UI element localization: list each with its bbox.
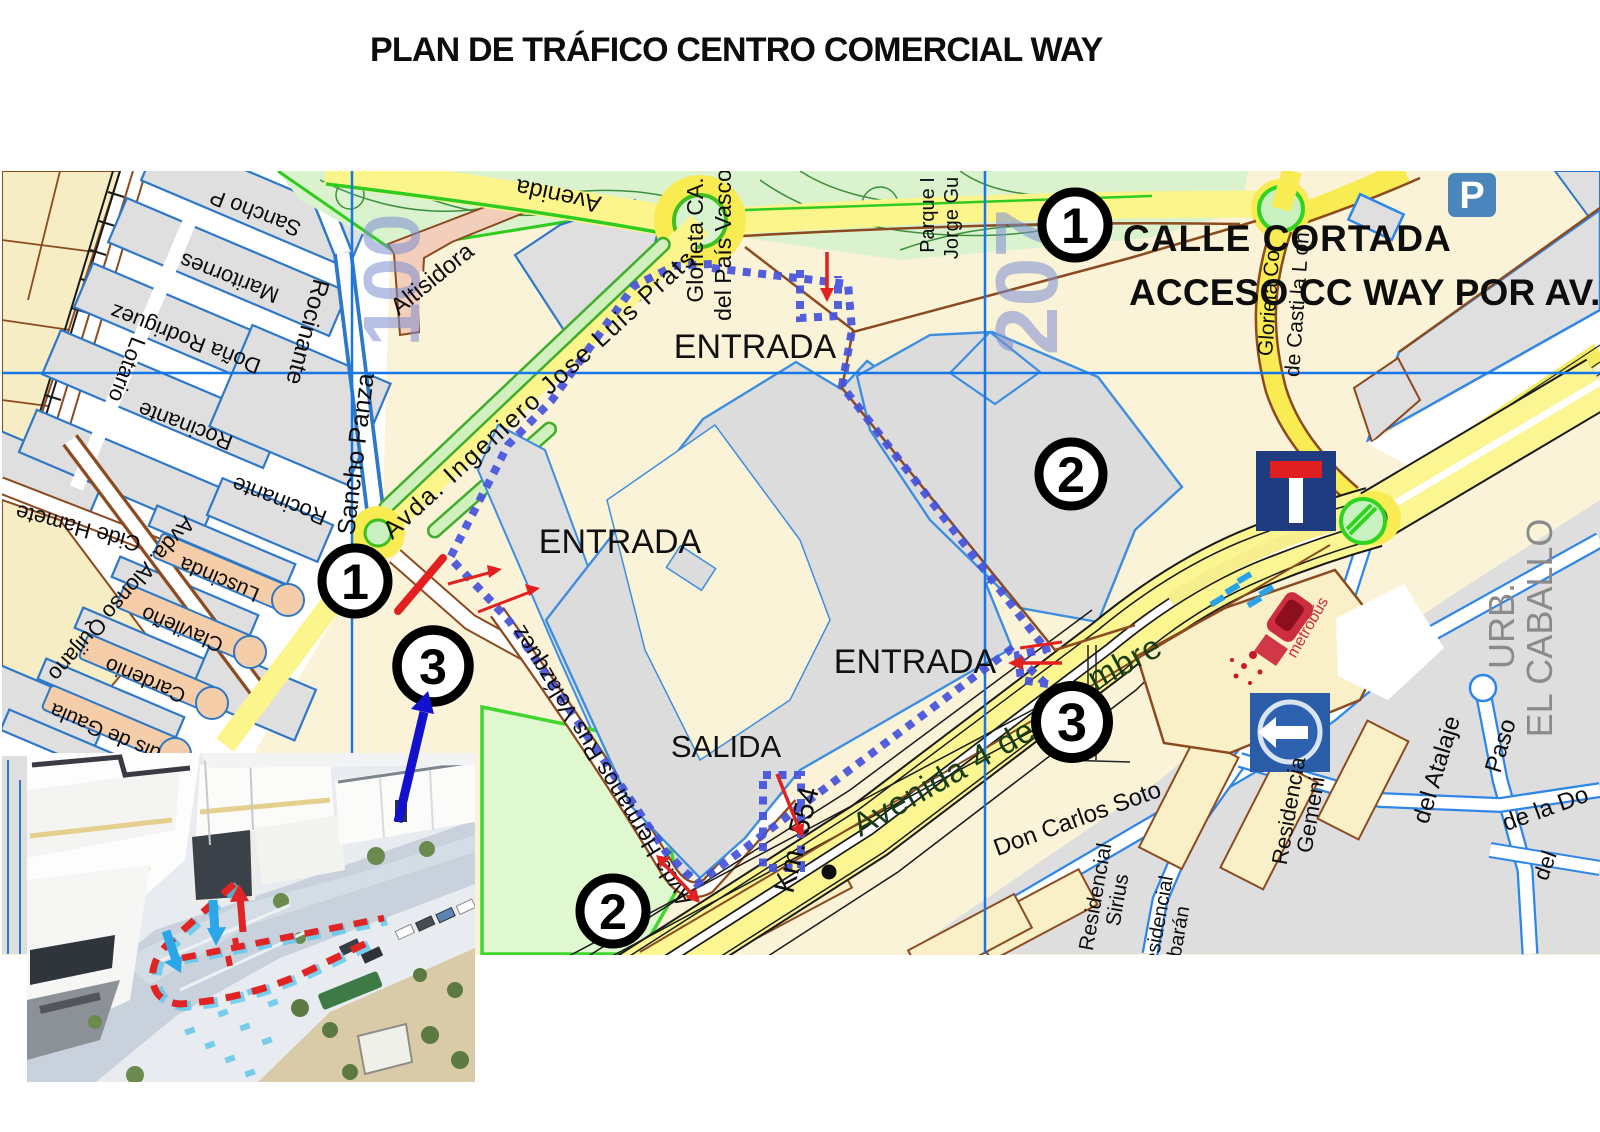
svg-text:ACCESO CC WAY POR AV. E: ACCESO CC WAY POR AV. E xyxy=(1129,272,1600,313)
svg-text:EL CABALLO: EL CABALLO xyxy=(1519,519,1560,738)
svg-text:CALLE CORTADA: CALLE CORTADA xyxy=(1123,218,1452,259)
svg-text:URB.: URB. xyxy=(1481,583,1522,669)
svg-text:P: P xyxy=(1459,175,1484,217)
svg-text:del País Vasco: del País Vasco xyxy=(710,169,736,321)
svg-text:ENTRADA: ENTRADA xyxy=(674,328,837,366)
svg-text:Parque I: Parque I xyxy=(917,177,939,253)
svg-text:2: 2 xyxy=(599,884,627,940)
svg-text:ENTRADA: ENTRADA xyxy=(539,523,702,561)
svg-text:SALIDA: SALIDA xyxy=(671,729,782,764)
svg-text:3: 3 xyxy=(1057,693,1087,753)
svg-text:ENTRADA: ENTRADA xyxy=(834,643,997,681)
svg-text:2: 2 xyxy=(1057,447,1085,503)
svg-text:Jorge Gu: Jorge Gu xyxy=(941,177,963,259)
svg-text:1: 1 xyxy=(341,554,369,610)
svg-text:1: 1 xyxy=(1061,198,1089,254)
svg-text:Glorieta CA.: Glorieta CA. xyxy=(682,177,708,302)
svg-text:PLAN DE TRÁFICO CENTRO COMERCI: PLAN DE TRÁFICO CENTRO COMERCIAL WAY xyxy=(370,31,1104,69)
svg-text:3: 3 xyxy=(419,639,447,695)
